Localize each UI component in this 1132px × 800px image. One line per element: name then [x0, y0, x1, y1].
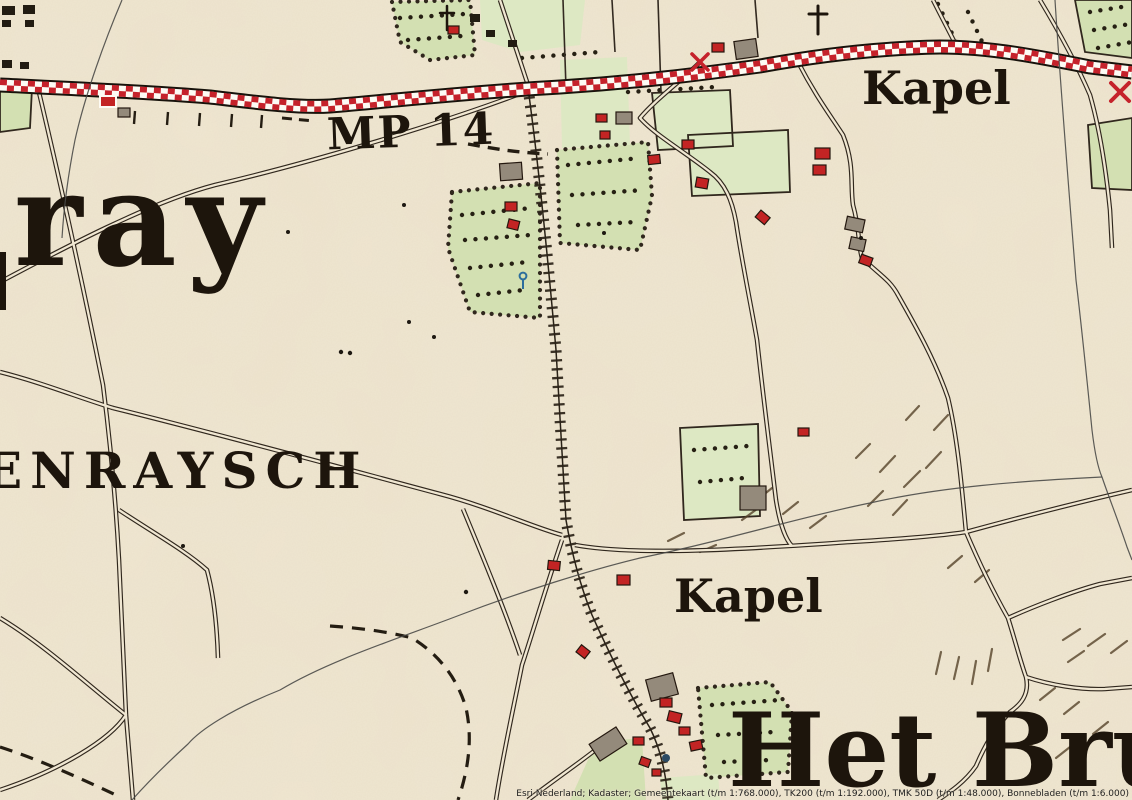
pond-icon	[662, 754, 670, 762]
label-kapel-south: Kapel	[674, 569, 823, 623]
label-het-brux-partial: Het Brux	[728, 691, 1132, 800]
label-place-partial: ray	[14, 143, 272, 296]
partial-letter-fragment	[0, 252, 6, 310]
map-attribution: Esri Nederland; Kadaster; Gemeentekaart …	[516, 789, 1129, 799]
label-heath-partial: ENRAYSCH	[0, 441, 369, 500]
historical-map-viewport[interactable]: ray ENRAYSCH MP 14 Kapel Kapel Het Brux …	[0, 0, 1132, 800]
label-kapel-north: Kapel	[862, 61, 1011, 115]
map-canvas: ray ENRAYSCH MP 14 Kapel Kapel Het Brux	[0, 0, 1132, 800]
label-milepost: MP 14	[326, 104, 496, 161]
